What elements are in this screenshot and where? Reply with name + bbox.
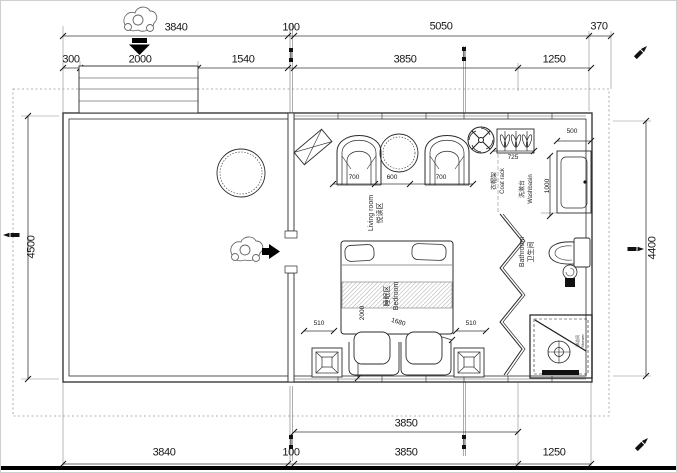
person-icon-deck xyxy=(231,237,263,262)
dim-bed-510-right: 510 xyxy=(466,321,477,328)
dim-bottom2-1250: 1250 xyxy=(543,448,566,459)
coatrack-label-en: Coat rack xyxy=(500,168,508,194)
ceiling-fan-icon xyxy=(468,127,494,153)
dim-chair-700-right: 700 xyxy=(436,175,447,182)
washbasin-label-en: Washbasin xyxy=(528,174,536,203)
coffee-table xyxy=(380,134,418,172)
dim-top2-2000: 2000 xyxy=(129,55,152,66)
pillow-right xyxy=(412,243,447,260)
nightstand-right xyxy=(454,348,484,377)
dim-top2-300: 300 xyxy=(62,55,79,66)
entry-stairs xyxy=(79,66,198,113)
room-label-shower: 淋浴间 Shower xyxy=(576,334,586,348)
dim-top2-3850: 3850 xyxy=(394,55,417,66)
dim-top2-1540: 1540 xyxy=(232,55,255,66)
pen-icon-bottom-right xyxy=(635,436,650,451)
living-label-en: Living room xyxy=(367,195,376,231)
dim-washbasin-1000: 1000 xyxy=(545,179,552,193)
dim-washbasin-500: 500 xyxy=(567,129,578,136)
dim-top-5050: 5050 xyxy=(430,22,453,33)
dim-top-370: 370 xyxy=(590,22,607,33)
door-leaf xyxy=(294,129,332,164)
bathroom-label-en: Bathroom xyxy=(518,237,527,267)
room-label-washbasin: 洗漱台 Washbasin xyxy=(520,174,536,203)
bedroom-label-zh: 睡眠区 xyxy=(383,282,392,310)
plan-linework xyxy=(1,1,677,473)
bedroom-label-en: Bedroom xyxy=(392,282,401,310)
dim-top-100: 100 xyxy=(282,23,299,34)
nightstand-left xyxy=(312,348,342,377)
bottom-border-bar xyxy=(1,466,677,470)
dim-bottom2-3840: 3840 xyxy=(153,448,176,459)
room-label-bathroom: Bathroom 卫生间 xyxy=(518,237,536,267)
paper-roll xyxy=(563,265,577,279)
bench-right xyxy=(401,332,451,375)
coat-rack xyxy=(497,129,534,153)
dim-right-4400: 4400 xyxy=(648,237,659,260)
dim-bed-2000: 2000 xyxy=(360,306,367,320)
dim-bottom2-3850: 3850 xyxy=(395,448,418,459)
dim-top-3840: 3840 xyxy=(165,23,188,34)
deck-table xyxy=(217,149,265,197)
person-icon-entry xyxy=(124,7,157,31)
entry-arrow-icon xyxy=(129,38,150,55)
bench-left xyxy=(349,332,399,375)
dim-table-600: 600 xyxy=(387,175,398,182)
dim-coatrack-725: 725 xyxy=(508,155,519,162)
pen-icon-top-right xyxy=(634,44,649,59)
armchair-right xyxy=(425,136,469,186)
living-label-zh: 悦读区 xyxy=(376,195,385,231)
deck-arrow-icon xyxy=(262,244,280,259)
dim-left-4500: 4500 xyxy=(27,236,38,259)
dim-bed-510-left: 510 xyxy=(314,321,325,328)
dim-bottom2-100: 100 xyxy=(282,448,299,459)
room-label-coatrack: 衣帽架 Coat rack xyxy=(492,168,508,194)
washbasin-label-zh: 洗漱台 xyxy=(520,174,528,203)
coatrack-label-zh: 衣帽架 xyxy=(492,168,500,194)
shower-label-en: Shower xyxy=(581,334,586,348)
dim-top2-1250: 1250 xyxy=(543,55,566,66)
toilet xyxy=(549,238,590,287)
pen-icon-right-middle xyxy=(628,247,645,251)
pen-icon-left-middle xyxy=(3,233,20,237)
dim-bottom1-3850: 3850 xyxy=(395,419,418,430)
floor-plan: 3840 100 5050 370 300 2000 1540 3850 125… xyxy=(0,0,677,473)
pillow-left xyxy=(345,244,375,261)
room-label-living: Living room 悦读区 xyxy=(367,195,385,231)
dim-chair-700-left: 700 xyxy=(349,175,360,182)
bathroom-label-zh: 卫生间 xyxy=(527,237,536,267)
room-label-bedroom: 睡眠区 Bedroom xyxy=(383,282,401,310)
